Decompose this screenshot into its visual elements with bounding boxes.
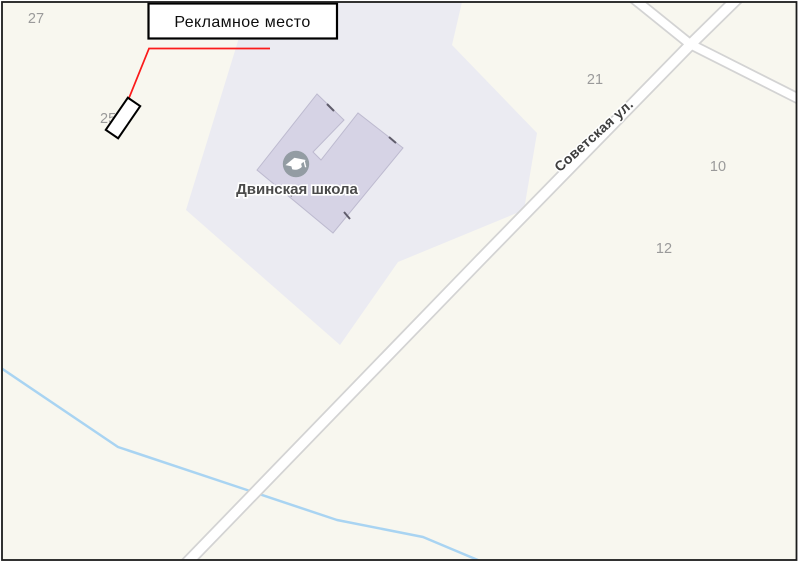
house-number-10: 10 (710, 159, 726, 175)
map-screenshot: 27 21 10 12 25 Советская ул. Двинская шк… (0, 0, 800, 564)
callout-label-box[interactable]: Рекламное место (149, 4, 338, 39)
map-canvas[interactable]: 27 21 10 12 25 Советская ул. Двинская шк… (0, 0, 800, 564)
house-number-21: 21 (587, 72, 603, 88)
school-poi-label: Двинская школа (236, 181, 358, 198)
house-number-27: 27 (28, 11, 44, 27)
callout-box-text: Рекламное место (174, 14, 310, 31)
house-number-12: 12 (656, 241, 672, 257)
